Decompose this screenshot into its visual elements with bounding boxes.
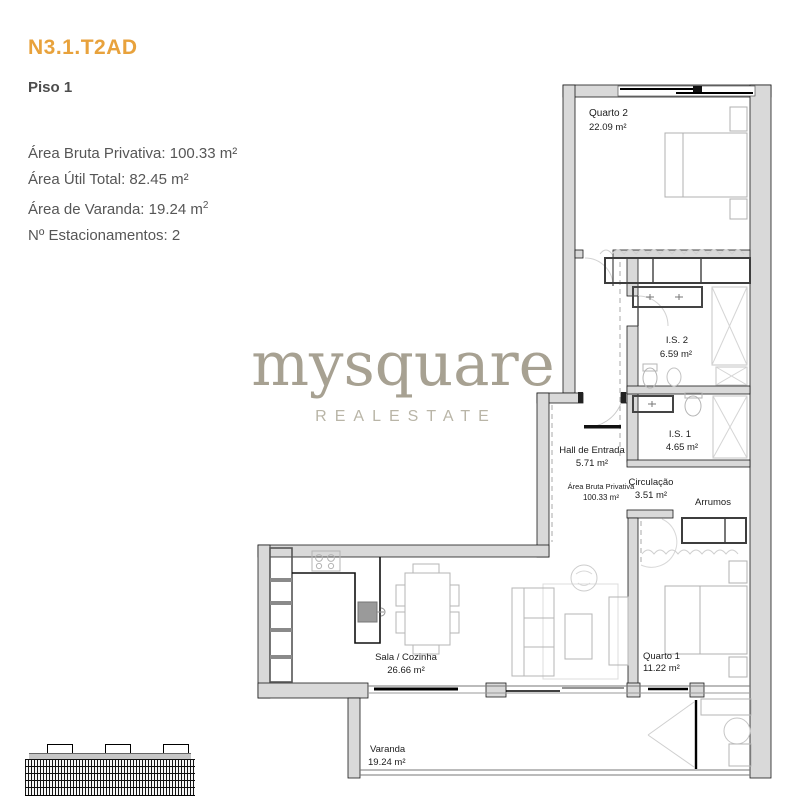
room-area-sala: 26.66 m² [387, 665, 425, 676]
elevation-baseline [25, 795, 195, 796]
nightstand-icon [729, 657, 747, 677]
room-area-varanda: 19.24 m² [368, 757, 406, 768]
nightstand-icon [730, 199, 747, 219]
chair-icon [450, 585, 459, 606]
detail-area-util: Área Útil Total: 82.45 m² [28, 167, 237, 193]
building-elevation [25, 744, 195, 796]
nightstand-icon [730, 107, 747, 131]
room-area-circulacao: 3.51 m² [635, 490, 667, 501]
room-area-quarto1: 11.22 m² [643, 663, 680, 674]
room-label-hall: Hall de Entrada [559, 445, 625, 456]
chair-icon [396, 612, 405, 633]
area-details: Área Bruta Privativa: 100.33 m² Área Úti… [28, 141, 237, 249]
unit-code-title: N3.1.T2AD [28, 36, 138, 60]
dining-set [396, 564, 459, 654]
room-label-circulacao: Circulação [629, 477, 674, 488]
detail-area-bruta: Área Bruta Privativa: 100.33 m² [28, 141, 237, 167]
room-area-is2: 6.59 m² [660, 349, 692, 360]
bed-icon [665, 586, 747, 654]
room-area-quarto2: 22.09 m² [589, 122, 627, 133]
room-label-quarto1: Quarto 1 [643, 651, 680, 662]
room-area-hall: 5.71 m² [576, 458, 608, 469]
room-label-quarto2: Quarto 2 [589, 108, 628, 119]
brochure-page: N3.1.T2AD Piso 1 Área Bruta Privativa: 1… [0, 0, 792, 797]
window-top [618, 86, 755, 96]
entry-door-leaf [584, 425, 621, 429]
elevation-floor [25, 787, 195, 795]
room-label-is2: I.S. 2 [666, 335, 688, 346]
room-label-is1: I.S. 1 [669, 429, 691, 440]
bed-icon [665, 133, 747, 197]
room-area-abp: 100.33 m² [583, 493, 619, 502]
room-label-arrumos: Arrumos [695, 497, 731, 508]
entry-door-jamb [578, 392, 583, 403]
dining-table-icon [405, 573, 450, 645]
room-label-sala: Sala / Cozinha [375, 652, 438, 663]
room-label-abp: Área Bruta Privativa [568, 482, 636, 491]
detail-area-varanda: Área de Varanda: 19.24 m2 [28, 193, 237, 223]
room-label-varanda: Varanda [370, 744, 406, 755]
chair-icon [396, 585, 405, 606]
floor-plan: Quarto 2 22.09 m² I.S. 2 6.59 m² I.S. 1 … [0, 0, 792, 797]
floor-label: Piso 1 [28, 79, 72, 96]
detail-estacionamentos: Nº Estacionamentos: 2 [28, 223, 237, 249]
room-area-is1: 4.65 m² [666, 442, 698, 453]
kitchen-sink-icon [358, 602, 377, 622]
chair-icon [413, 564, 439, 573]
nightstand-icon [729, 561, 747, 583]
chair-icon [450, 612, 459, 633]
